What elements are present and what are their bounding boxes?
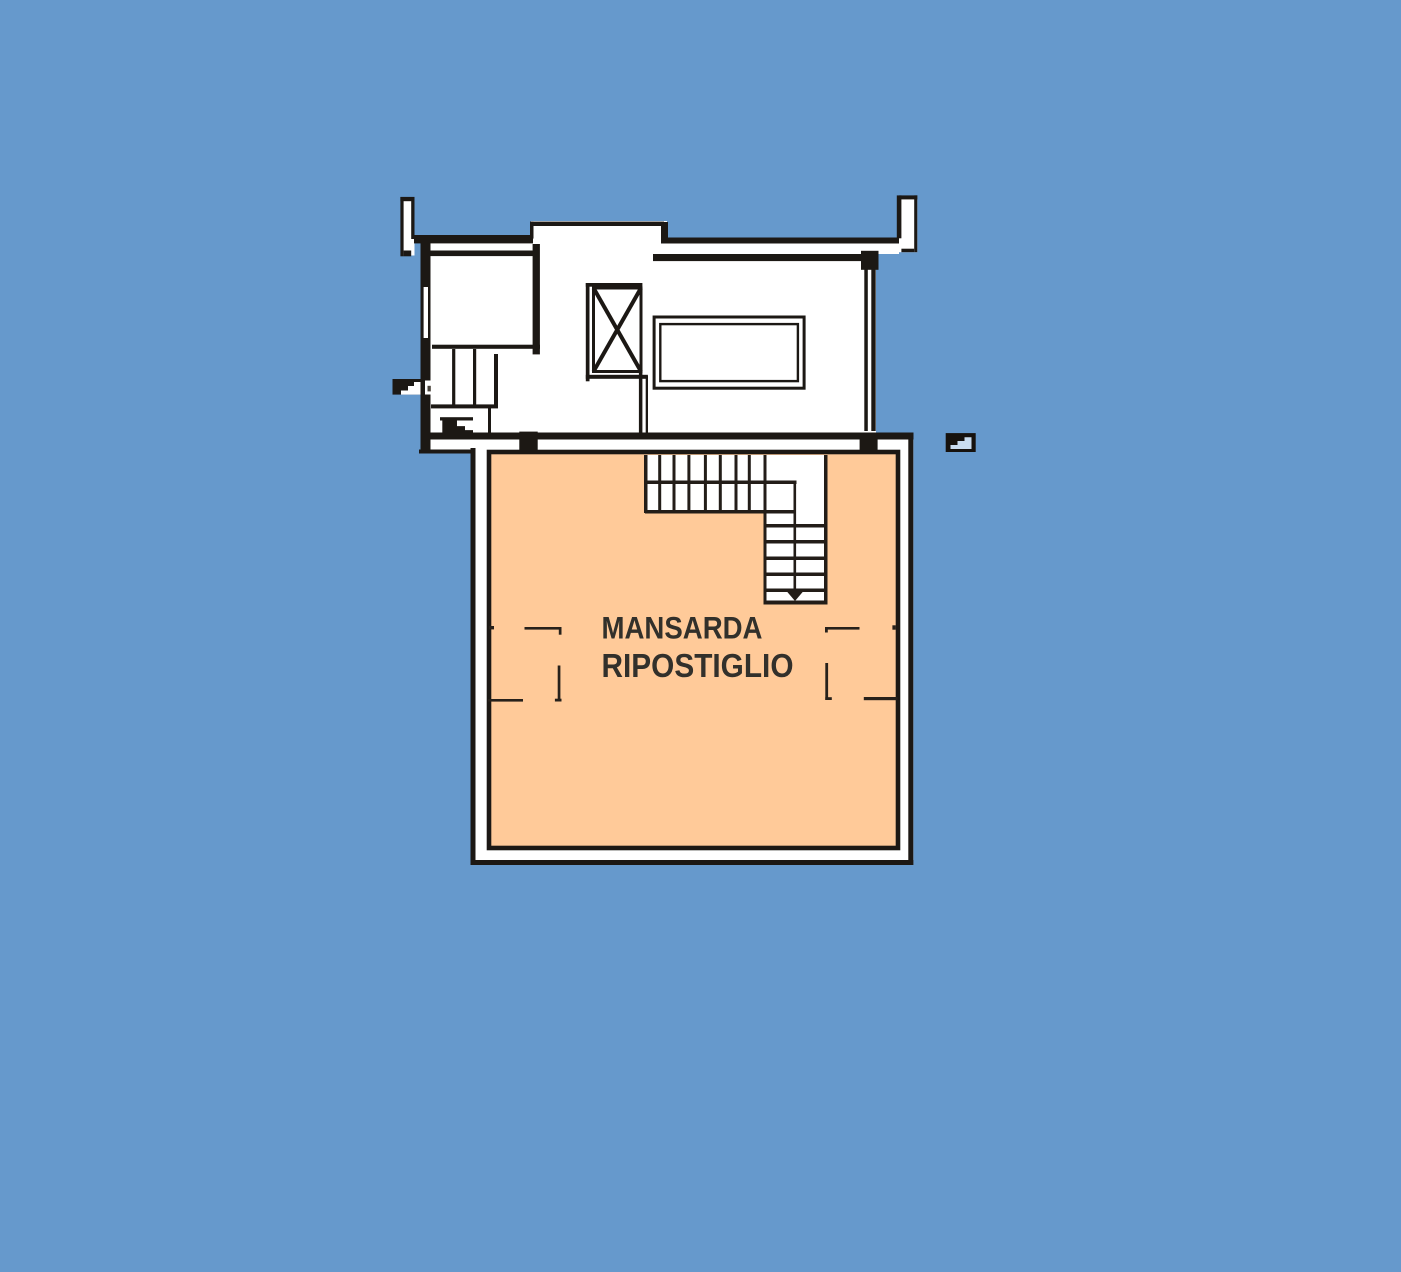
svg-text:MANSARDA: MANSARDA xyxy=(602,610,763,646)
svg-text:RIPOSTIGLIO: RIPOSTIGLIO xyxy=(602,648,794,685)
